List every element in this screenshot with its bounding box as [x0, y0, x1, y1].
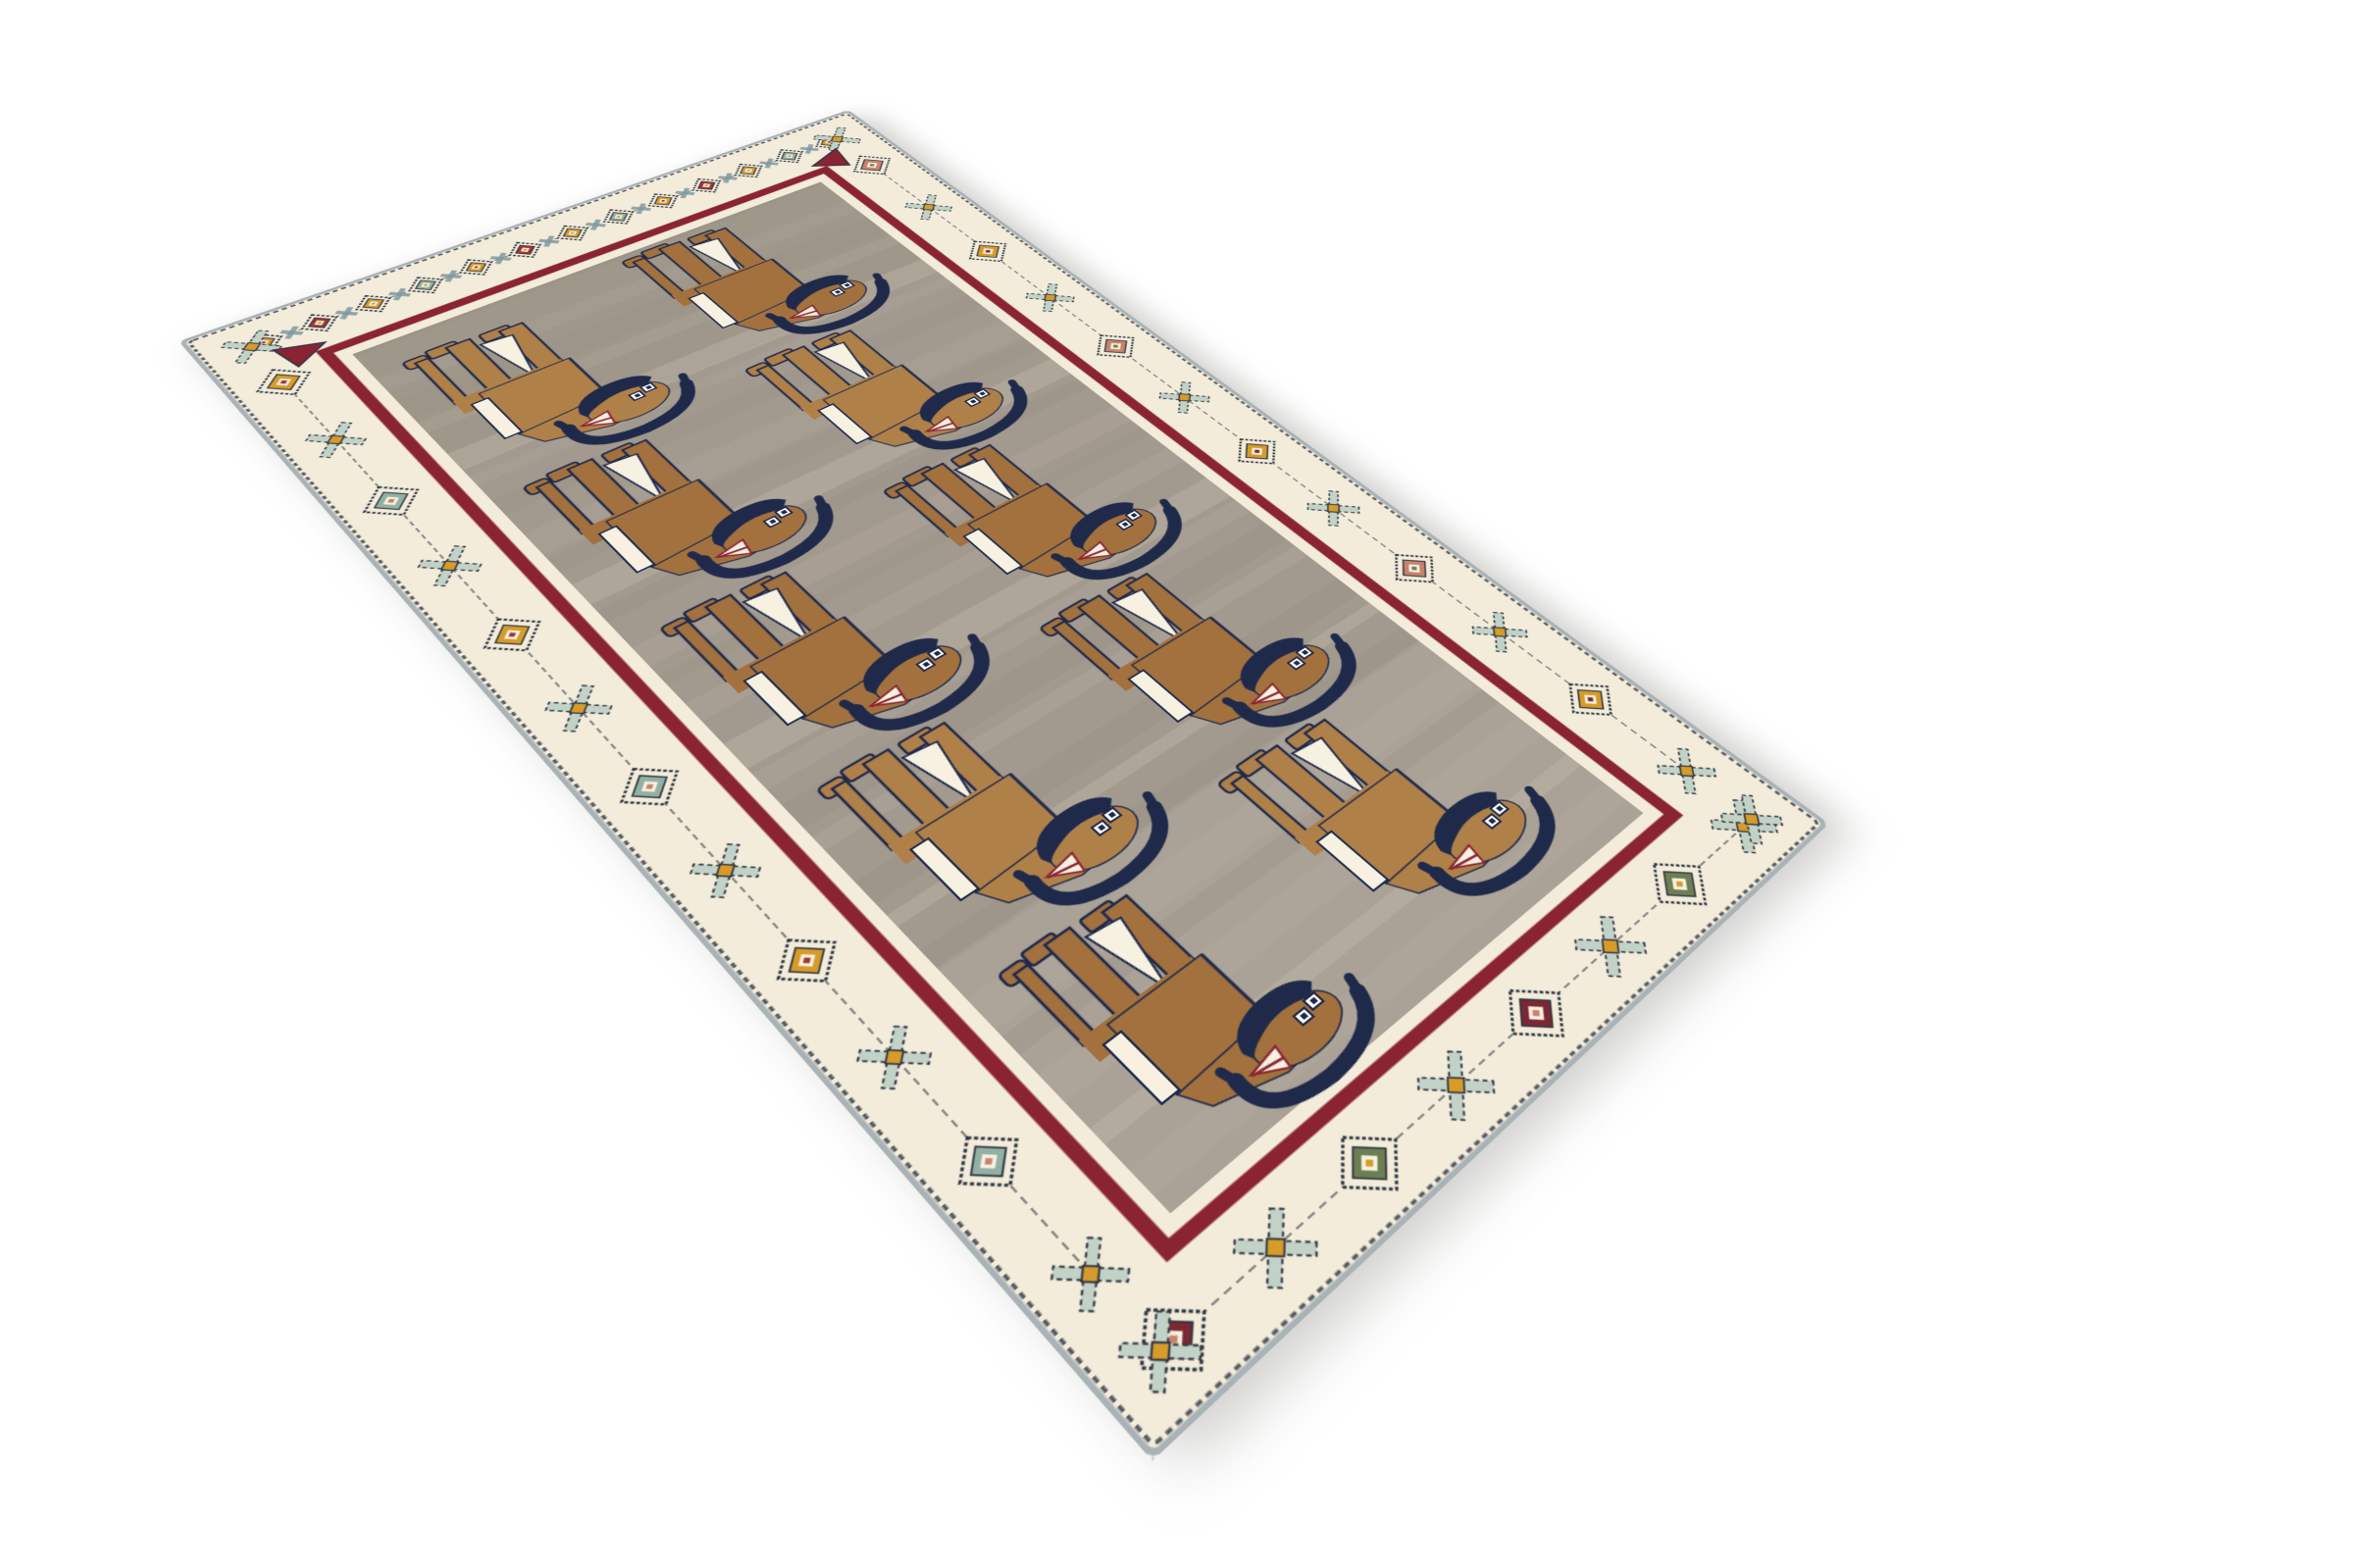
lion-rug — [179, 110, 1829, 1461]
photo-canvas — [0, 0, 2354, 1568]
